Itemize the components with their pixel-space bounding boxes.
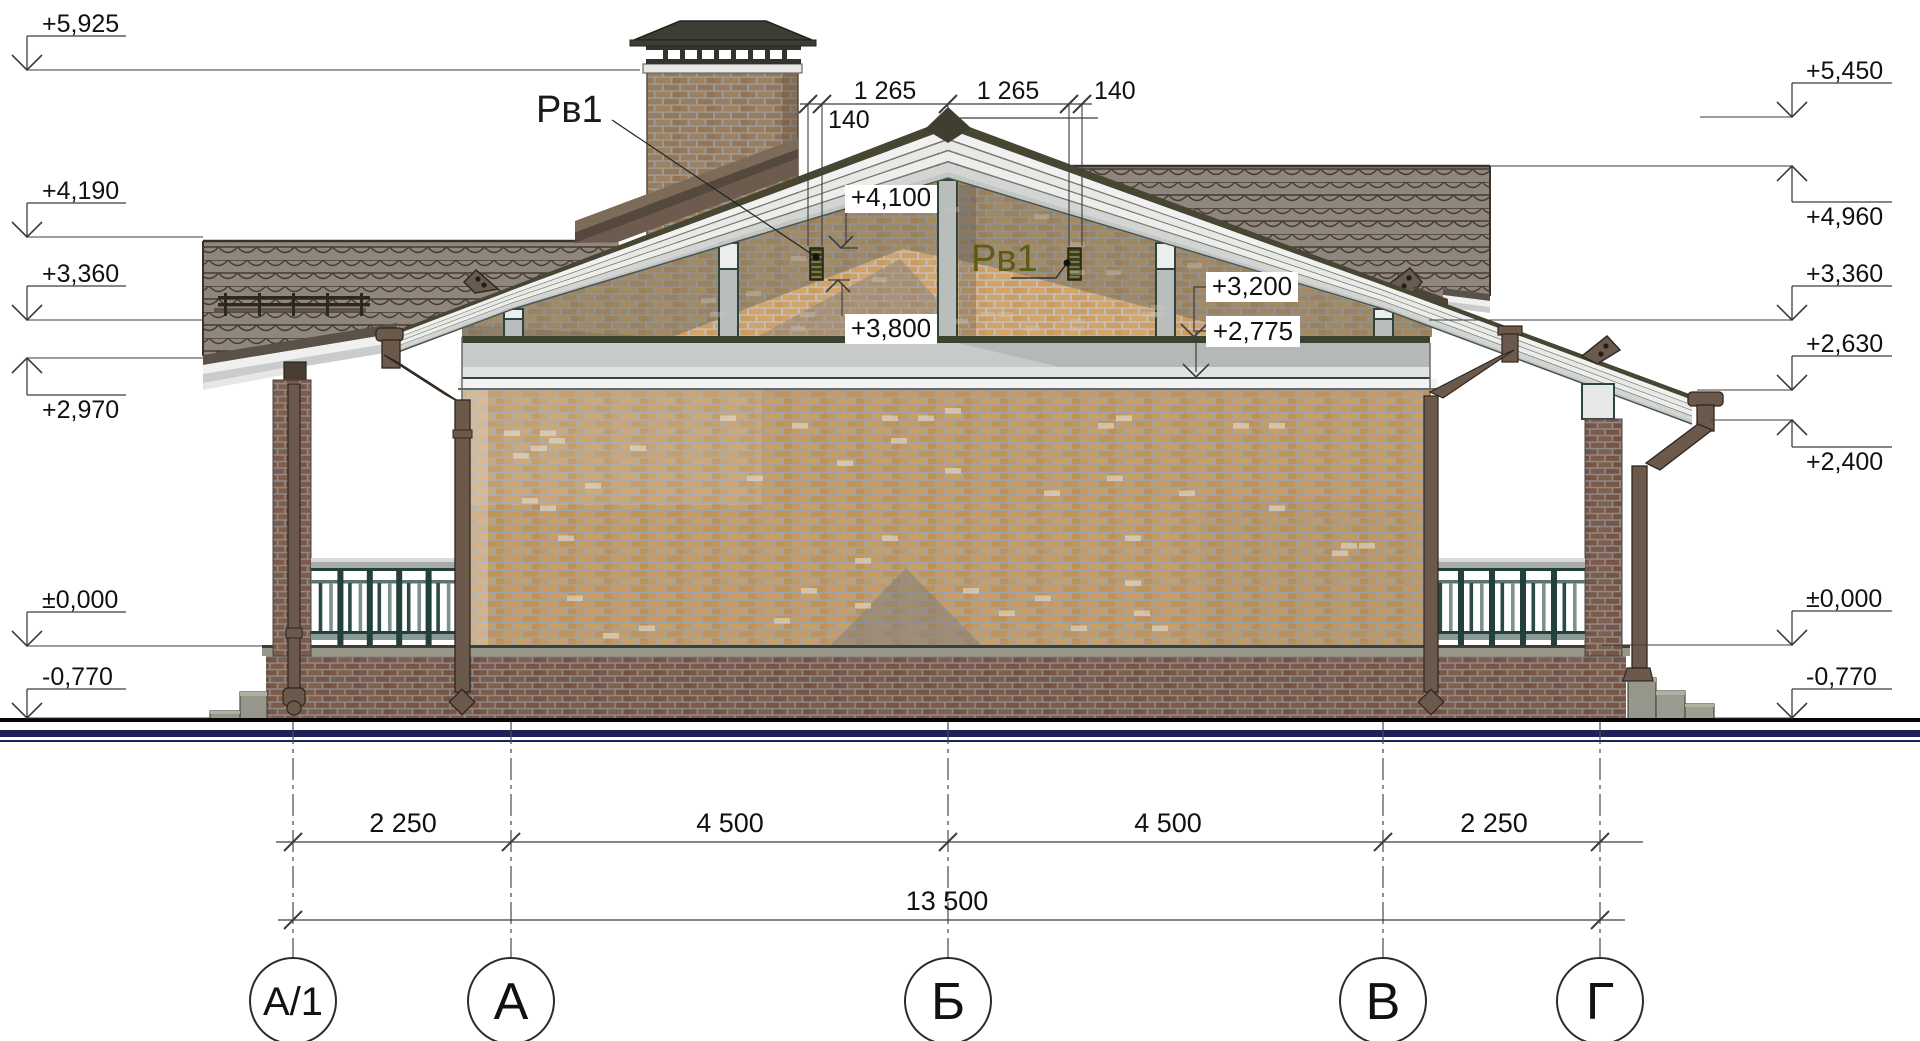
svg-text:Рв1: Рв1: [536, 89, 603, 131]
svg-text:±0,000: ±0,000: [1806, 585, 1882, 613]
svg-text:+4,100: +4,100: [851, 182, 931, 212]
svg-text:4 500: 4 500: [696, 808, 764, 838]
svg-text:+4,190: +4,190: [42, 177, 119, 205]
svg-text:+3,360: +3,360: [1806, 260, 1883, 288]
svg-text:+5,450: +5,450: [1806, 57, 1883, 85]
svg-text:+2,775: +2,775: [1213, 316, 1293, 346]
svg-text:+3,800: +3,800: [851, 313, 931, 343]
svg-text:140: 140: [828, 106, 870, 134]
svg-text:1 265: 1 265: [977, 77, 1040, 105]
svg-text:2 250: 2 250: [1460, 808, 1528, 838]
svg-text:Рв1: Рв1: [971, 238, 1038, 280]
svg-text:1 265: 1 265: [854, 77, 917, 105]
svg-text:А: А: [494, 973, 529, 1031]
svg-text:+5,925: +5,925: [42, 10, 119, 38]
svg-text:+3,360: +3,360: [42, 260, 119, 288]
svg-text:+2,630: +2,630: [1806, 330, 1883, 358]
svg-text:13 500: 13 500: [906, 886, 989, 916]
svg-text:-0,770: -0,770: [42, 663, 113, 691]
svg-text:Б: Б: [931, 973, 965, 1031]
svg-text:+4,960: +4,960: [1806, 203, 1883, 231]
svg-text:4 500: 4 500: [1134, 808, 1202, 838]
svg-text:+3,200: +3,200: [1212, 271, 1292, 301]
svg-text:А/1: А/1: [263, 980, 323, 1024]
svg-text:±0,000: ±0,000: [42, 586, 118, 614]
svg-text:-0,770: -0,770: [1806, 663, 1877, 691]
svg-text:В: В: [1366, 973, 1401, 1031]
svg-text:+2,400: +2,400: [1806, 448, 1883, 476]
svg-text:140: 140: [1094, 77, 1136, 105]
svg-text:+2,970: +2,970: [42, 396, 119, 424]
svg-text:Г: Г: [1586, 973, 1614, 1031]
svg-text:2 250: 2 250: [369, 808, 437, 838]
